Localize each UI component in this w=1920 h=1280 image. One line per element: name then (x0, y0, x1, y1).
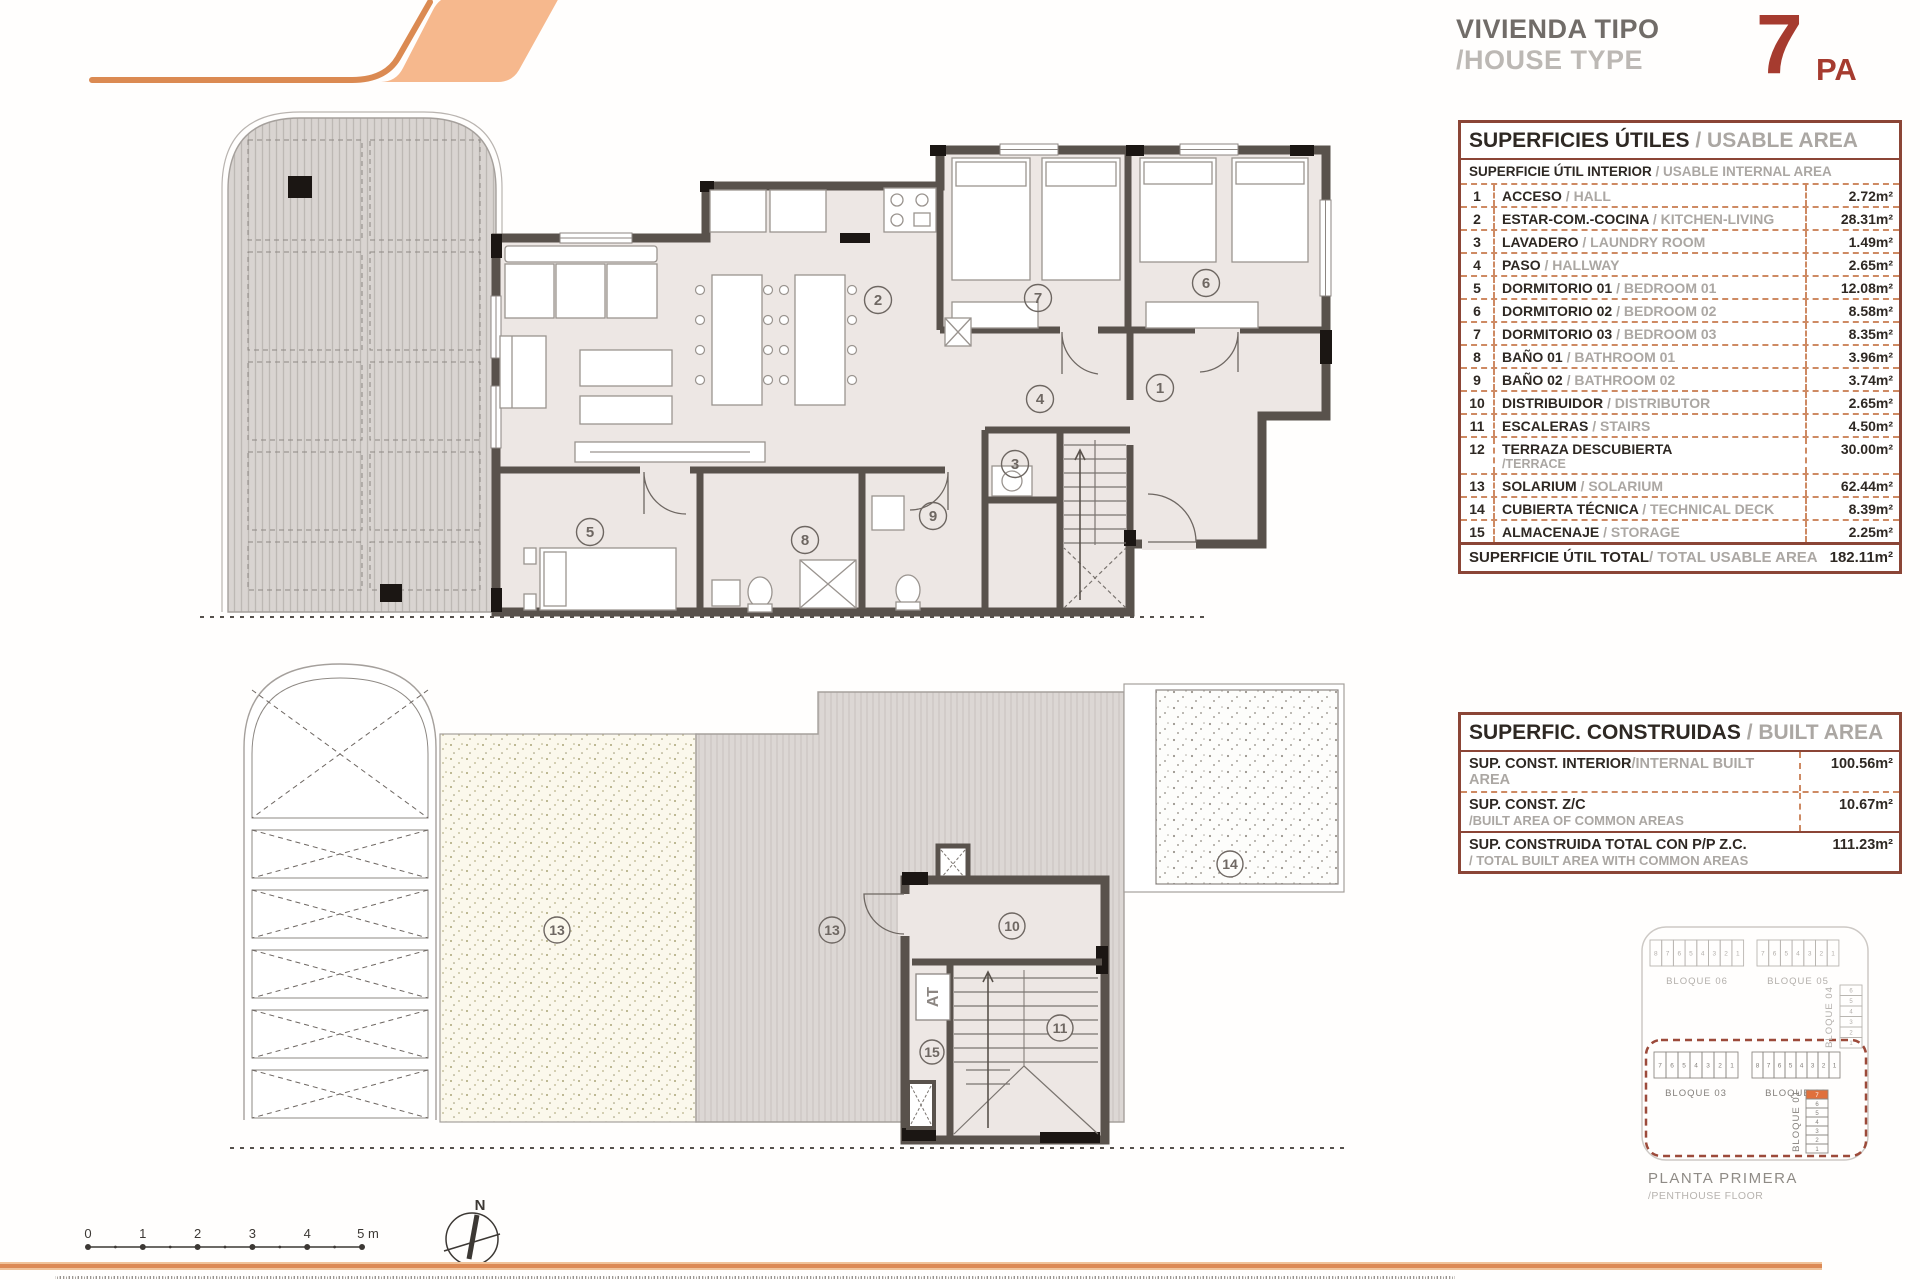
svg-text:3: 3 (1713, 950, 1717, 957)
svg-text:2: 2 (1820, 950, 1824, 957)
table-row: 10DISTRIBUIDOR / DISTRIBUTOR2.65m² (1461, 390, 1899, 413)
svg-text:6: 6 (1773, 950, 1777, 957)
built-value: 10.67m² (1799, 793, 1899, 831)
svg-text:5: 5 (1789, 1062, 1793, 1069)
svg-text:6: 6 (1778, 1062, 1782, 1069)
built-area-table: SUPERFIC. CONSTRUIDAS / BUILT AREA SUP. … (1458, 712, 1902, 874)
table-row: 1ACCESO / HALL2.72m² (1461, 183, 1899, 206)
room-marker: 10 (1004, 918, 1020, 934)
site-block-label: BLOQUE 01 (1791, 1090, 1802, 1152)
table-row: 6DORMITORIO 02 / BEDROOM 028.58m² (1461, 298, 1899, 321)
built-row: SUP. CONST. INTERIOR/INTERNAL BUILT AREA… (1461, 750, 1899, 791)
site-block-label: BLOQUE 06 (1666, 976, 1728, 987)
svg-text:5: 5 (1682, 1062, 1686, 1069)
scale-label: 1 (139, 1226, 146, 1241)
svg-text:1: 1 (1833, 1062, 1837, 1069)
svg-text:3: 3 (1706, 1062, 1710, 1069)
table-row: 3LAVADERO / LAUNDRY ROOM1.49m² (1461, 229, 1899, 252)
table-row: 8BAÑO 01 / BATHROOM 013.96m² (1461, 344, 1899, 367)
table-row: 14CUBIERTA TÉCNICA / TECHNICAL DECK8.39m… (1461, 496, 1899, 519)
footer-rule (0, 1262, 1822, 1280)
svg-text:3: 3 (1815, 1129, 1819, 1135)
svg-text:8: 8 (1756, 1062, 1760, 1069)
stair-block: AT (864, 846, 1108, 1143)
site-caption: PLANTA PRIMERA (1648, 1170, 1798, 1187)
roof-vent (380, 584, 402, 602)
room-marker: 2 (874, 292, 882, 309)
site-block-label: BLOQUE 03 (1665, 1088, 1727, 1099)
scale-label: 3 (249, 1226, 256, 1241)
site-key-plan: 87654321BLOQUE 067654321BLOQUE 05654321B… (1642, 927, 1868, 1202)
table-row: 5DORMITORIO 01 / BEDROOM 0112.08m² (1461, 275, 1899, 298)
usable-table-title: SUPERFICIES ÚTILES / USABLE AREA (1461, 123, 1899, 158)
house-type-suffix: PA (1816, 52, 1857, 88)
svg-text:7: 7 (1666, 950, 1670, 957)
svg-text:3: 3 (1808, 950, 1812, 957)
svg-text:1: 1 (1831, 950, 1835, 957)
svg-text:6: 6 (1670, 1062, 1674, 1069)
usable-total-row: SUPERFICIE ÚTIL TOTAL / TOTAL USABLE ARE… (1461, 542, 1899, 571)
room-marker: 11 (1053, 1020, 1068, 1036)
scale-bar: 012345 m (84, 1226, 378, 1250)
svg-text:1: 1 (1815, 1147, 1819, 1153)
clipped-footer-text (55, 1275, 1455, 1280)
svg-text:4: 4 (1815, 1120, 1819, 1126)
room-marker: 13 (824, 922, 840, 938)
svg-text:4: 4 (1694, 1062, 1698, 1069)
table-row: 9BAÑO 02 / BATHROOM 023.74m² (1461, 367, 1899, 390)
scale-label: 4 (304, 1226, 311, 1241)
room-marker: 15 (924, 1044, 940, 1060)
built-total-row: SUP. CONSTRUIDA TOTAL CON P/P Z.C./ TOTA… (1461, 831, 1899, 871)
table-row: 4PASO / HALLWAY2.65m² (1461, 252, 1899, 275)
usable-total-value: 182.11m² (1830, 549, 1893, 566)
table-row: 15ALMACENAJE / STORAGE2.25m² (1461, 519, 1899, 542)
room-marker: 9 (929, 508, 937, 525)
built-table-title: SUPERFIC. CONSTRUIDAS / BUILT AREA (1461, 715, 1899, 750)
table-row: 13SOLARIUM / SOLARIUM62.44m² (1461, 473, 1899, 496)
svg-text:8: 8 (1654, 950, 1658, 957)
room-marker: 7 (1034, 290, 1042, 307)
floor-plan-upper: 1 2 3 4 5 6 7 8 9 (200, 112, 1332, 617)
svg-text:2: 2 (1718, 1062, 1722, 1069)
brand-logo (92, 0, 560, 82)
room-marker: 3 (1011, 456, 1019, 473)
plan-sheet-page: 1 2 3 4 5 6 7 8 9 (0, 0, 1920, 1280)
technical-deck-area (1156, 690, 1338, 884)
attic-label: AT (925, 987, 942, 1007)
svg-text:6: 6 (1849, 989, 1853, 995)
svg-text:7: 7 (1761, 950, 1765, 957)
table-row: 11ESCALERAS / STAIRS4.50m² (1461, 413, 1899, 436)
svg-text:4: 4 (1849, 1010, 1853, 1016)
site-caption-en: /PENTHOUSE FLOOR (1648, 1190, 1763, 1202)
usable-area-table: SUPERFICIES ÚTILES / USABLE AREA SUPERFI… (1458, 120, 1902, 574)
room-marker: 1 (1156, 380, 1164, 397)
site-block-label: BLOQUE 05 (1767, 976, 1829, 987)
svg-text:5: 5 (1784, 950, 1788, 957)
room-marker: 5 (586, 524, 594, 541)
built-total-value: 111.23m² (1801, 833, 1899, 871)
svg-text:7: 7 (1767, 1062, 1771, 1069)
svg-text:1: 1 (1849, 1041, 1853, 1047)
svg-text:5: 5 (1815, 1111, 1819, 1117)
svg-text:2: 2 (1822, 1062, 1826, 1069)
svg-text:4: 4 (1701, 950, 1705, 957)
svg-text:6: 6 (1677, 950, 1681, 957)
kitchen-fixtures (710, 188, 936, 232)
north-label: N (475, 1197, 486, 1214)
scale-label: 5 m (357, 1226, 379, 1241)
svg-text:3: 3 (1849, 1020, 1853, 1026)
room-marker: 8 (801, 532, 809, 549)
built-value: 100.56m² (1799, 752, 1899, 791)
usable-table-subtitle: SUPERFICIE ÚTIL INTERIOR / USABLE INTERN… (1461, 158, 1899, 183)
table-row: 12TERRAZA DESCUBIERTA/TERRACE30.00m² (1461, 436, 1899, 473)
svg-text:3: 3 (1811, 1062, 1815, 1069)
scale-label: 0 (84, 1226, 91, 1241)
svg-text:5: 5 (1689, 950, 1693, 957)
svg-text:1: 1 (1736, 950, 1740, 957)
site-block-label: BLOQUE 04 (1824, 986, 1835, 1048)
room-marker: 6 (1202, 275, 1210, 292)
svg-text:1: 1 (1730, 1062, 1734, 1069)
roof-vent (288, 176, 312, 198)
room-marker: 13 (549, 922, 565, 938)
svg-text:2: 2 (1724, 950, 1728, 957)
room-marker: 4 (1036, 391, 1045, 408)
svg-text:2: 2 (1849, 1031, 1853, 1037)
house-type-number: 7 (1756, 2, 1803, 86)
svg-text:2: 2 (1815, 1138, 1819, 1144)
svg-text:4: 4 (1796, 950, 1800, 957)
room-marker: 14 (1222, 856, 1238, 872)
usable-table-rows: 1ACCESO / HALL2.72m²2ESTAR-COM.-COCINA /… (1461, 183, 1899, 542)
svg-text:5: 5 (1849, 999, 1853, 1005)
table-row: 7DORMITORIO 03 / BEDROOM 038.35m² (1461, 321, 1899, 344)
svg-text:4: 4 (1800, 1062, 1804, 1069)
scale-label: 2 (194, 1226, 201, 1241)
table-row: 2ESTAR-COM.-COCINA / KITCHEN-LIVING28.31… (1461, 206, 1899, 229)
svg-text:6: 6 (1815, 1102, 1819, 1108)
built-row: SUP. CONST. Z/C/BUILT AREA OF COMMON ARE… (1461, 791, 1899, 831)
north-arrow: N (444, 1197, 500, 1265)
house-type-title-es: VIVIENDA TIPO (1456, 14, 1916, 45)
floor-plan-lower: AT 13 13 14 10 11 15 (230, 664, 1345, 1148)
svg-text:7: 7 (1658, 1062, 1662, 1069)
